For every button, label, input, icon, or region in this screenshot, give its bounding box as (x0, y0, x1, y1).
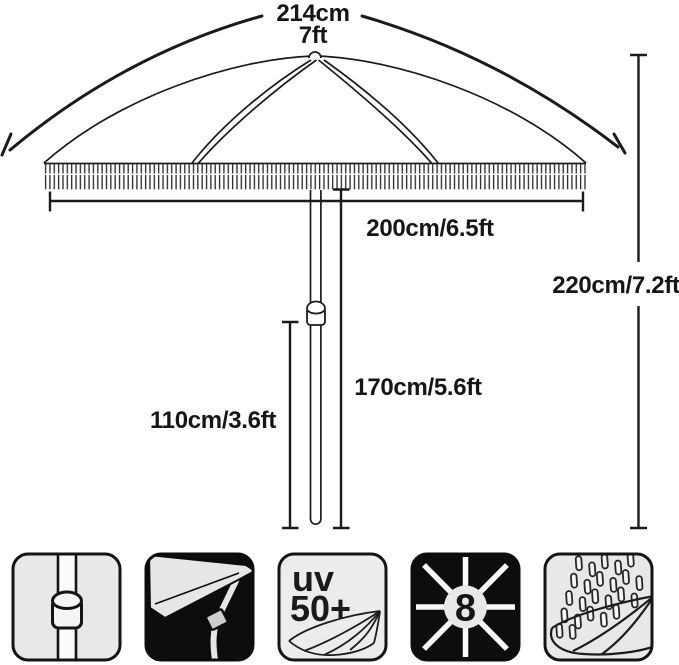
label-canopy-width: 200cm/6.5ft (366, 215, 494, 242)
ribs-count-label: 8 (455, 588, 476, 630)
feature-icon-row: uv 50+ 8 (10, 551, 655, 663)
pole-joint (307, 302, 325, 326)
label-total-height: 220cm/7.2ft (552, 272, 679, 299)
uv-50-protection-icon: uv 50+ (276, 551, 389, 663)
label-arc-ft: 7ft (299, 22, 328, 49)
measure-upper-pole (333, 190, 350, 529)
tilt-umbrella-icon (143, 551, 256, 663)
measure-lower-pole (282, 322, 299, 528)
measure-canopy-width (50, 192, 583, 212)
pole (311, 190, 321, 524)
eight-ribs-icon: 8 (409, 551, 522, 663)
pole-joint-icon (10, 551, 123, 663)
uv-label-line2: 50+ (290, 588, 351, 629)
finial-knob-icon (309, 52, 321, 58)
fringe-tassels (44, 164, 586, 189)
label-upper-pole: 170cm/5.6ft (354, 374, 482, 401)
label-lower-pole: 110cm/3.6ft (150, 407, 276, 434)
umbrella-dimension-diagram: 214cm 7ft 200cm/6.5ft 170cm/5.6ft 110cm/… (0, 0, 679, 540)
fringe-rain-icon (542, 551, 655, 663)
